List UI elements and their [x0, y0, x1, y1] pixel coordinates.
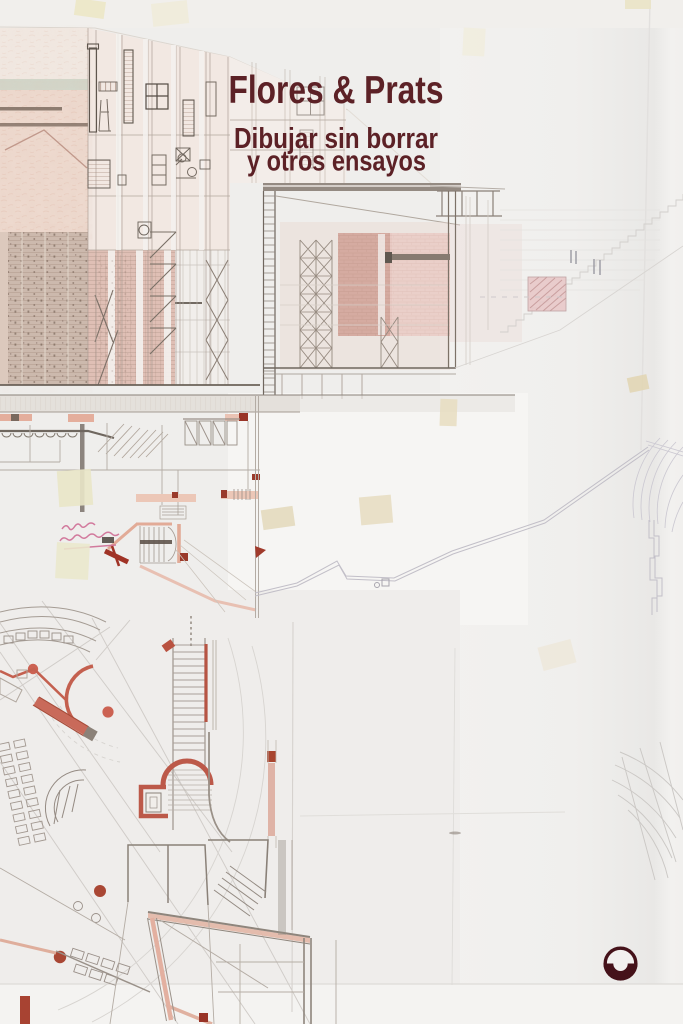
- svg-text:Flores & Prats: Flores & Prats: [229, 69, 444, 112]
- svg-text:y otros ensayos: y otros ensayos: [247, 146, 426, 178]
